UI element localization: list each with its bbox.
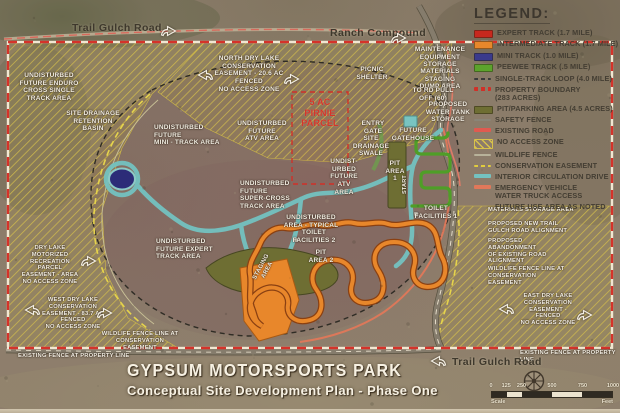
future-gatehouse — [404, 116, 417, 127]
east-easement-label: EAST DRY LAKE CONSERVATION EASEMENT - FE… — [516, 293, 580, 327]
legend-item: EXISTING ROAD — [474, 127, 620, 135]
north-easement-label: NORTH DRY LAKE CONSERVATION EASEMENT - 2… — [214, 55, 284, 93]
legend-item: SAFETY FENCE — [474, 116, 620, 124]
scale-bar-ticks: 01252505007501000 — [491, 383, 613, 390]
legend-item: INTERIOR CIRCULATION DRIVE — [474, 173, 620, 181]
legend-items: EXPERT TRACK (1.7 MILE)INTERMEDIATE TRAC… — [474, 29, 620, 211]
legend-swatch-dashed — [474, 87, 491, 91]
legend-swatch-solid — [474, 106, 493, 114]
legend-swatch-solid — [474, 41, 493, 49]
west-easement-label: WEST DRY LAKE CONSERVATION EASEMENT - 83… — [42, 297, 104, 331]
scale-segment — [492, 392, 507, 397]
drainage-swale-label: SITE DRAINAGE SWALE — [352, 135, 390, 158]
legend-item: NO ACCESS ZONE — [474, 138, 620, 149]
legend-label: WILDLIFE FENCE — [495, 151, 558, 159]
legend-item: MINI TRACK (1.0 MILE) — [474, 52, 620, 61]
legend-swatch-line-thin — [474, 154, 491, 156]
wildlife-fence-e-label: WILDLIFE FENCE LINE AT CONSERVATION EASE… — [488, 266, 570, 286]
existing-fence-sw-label: EXISTING FENCE AT PROPERTY LINE — [18, 353, 130, 360]
site-plan-page: Trail Gulch RoadRanch CompoundUNDISTURBE… — [0, 0, 620, 413]
legend-label: SAFETY FENCE — [495, 116, 552, 124]
retention-basin-label: SITE DRAINAGE RETENTION BASIN — [62, 110, 124, 133]
legend-item: PEEWEE TRACK (.5 MILE) — [474, 63, 620, 72]
legend-label: PEEWEE TRACK (.5 MILE) — [497, 63, 590, 71]
motorized-easement-arrow-icon — [80, 254, 97, 272]
legend-label: INTERMEDIATE TRACK (1.7 MILE) — [497, 40, 618, 48]
motorized-easement-label: DRY LAKE MOTORIZED RECREATION PARCEL EAS… — [18, 245, 82, 286]
legend-item: PROPERTY BOUNDARY (283 ACRES) — [474, 86, 620, 102]
mini-track-pond — [109, 169, 135, 190]
scale-segment — [507, 392, 522, 397]
east-easement-right-arrow-icon — [576, 308, 593, 326]
scale-tick: 750 — [578, 383, 587, 389]
legend-swatch-solid — [474, 64, 493, 72]
scale-tick: 500 — [547, 383, 556, 389]
wildlife-fence-sw-label: WILDLIFE FENCE LINE AT CONSERVATION EASE… — [100, 331, 180, 351]
atv-area-label: UNDISTURBED FUTURE ATV AREA — [236, 120, 288, 143]
north-easement-left-arrow-icon — [197, 68, 214, 86]
legend-item: CONSERVATION EASEMENT — [474, 162, 620, 170]
legend-label: PIT/PARKING AREA (4.5 ACRES) — [497, 105, 613, 113]
undisturbed-typical-label: UNDISTURBED AREA - TYPICAL — [282, 214, 340, 229]
legend-label: CONSERVATION EASEMENT — [495, 162, 597, 170]
expert-track-label: UNDISTURBED FUTURE EXPERT TRACK AREA — [156, 238, 216, 261]
scale-bar: 01252505007501000 Scale Feet — [491, 383, 613, 405]
feet-caption: Feet — [602, 399, 613, 405]
page-title: GYPSUM MOTORSPORTS PARK — [127, 362, 438, 381]
legend-swatch-line — [474, 185, 491, 189]
scale-segment — [522, 392, 552, 397]
maintenance-storage-label: MAINTENANCE EQUIPMENT STORAGE — [414, 46, 466, 69]
west-easement-right-arrow-icon — [96, 306, 113, 324]
legend-label: MINI TRACK (1.0 MILE) — [497, 52, 579, 60]
legend-swatch-line — [474, 128, 491, 132]
legend-label: FUTURE USE AREA AS NOTED — [495, 203, 606, 211]
legend-label: SINGLE-TRACK LOOP (4.0 MILE) — [495, 75, 612, 83]
legend-label: EXPERT TRACK (1.7 MILE) — [497, 29, 593, 37]
pit-area2-label: PIT AREA 2 — [306, 249, 336, 264]
scale-tick: 125 — [502, 383, 511, 389]
legend-item: WILDLIFE FENCE — [474, 151, 620, 159]
toilet1-label: TOILET FACILITIES 1 — [412, 205, 460, 220]
enduro-area-label: UNDISTURBED FUTURE ENDURO CROSS SINGLE T… — [10, 72, 88, 103]
picnic-shelter-label: PICNIC SHELTER — [352, 66, 392, 81]
legend-panel: LEGEND: EXPERT TRACK (1.7 MILE)INTERMEDI… — [474, 5, 620, 211]
photo-edge — [0, 409, 620, 413]
legend-item: EXPERT TRACK (1.7 MILE) — [474, 29, 620, 38]
west-easement-left-arrow-icon — [24, 303, 41, 321]
mini-track-area-label: UNDISTURBED FUTURE MINI - TRACK AREA — [154, 124, 226, 147]
future-gatehouse-label: FUTURE GATEHOUSE — [390, 127, 436, 142]
legend-swatch-dashed-thin — [474, 165, 491, 167]
supercross-label: UNDISTURBED FUTURE SUPER-CROSS TRACK ARE… — [240, 180, 292, 211]
scale-tick: 1000 — [607, 383, 619, 389]
legend-swatch-line-thin — [474, 119, 491, 121]
legend-item: SINGLE-TRACK LOOP (4.0 MILE) — [474, 75, 620, 83]
scale-caption: Scale — [491, 399, 505, 405]
toilet2-label: TOILET FACILITIES 2 — [290, 229, 338, 244]
legend-item: PIT/PARKING AREA (4.5 ACRES) — [474, 105, 620, 114]
trail-gulch-top-arrow-icon — [160, 24, 177, 42]
pirnie-parcel-label: 5 AC PIRNIE PARCEL — [296, 97, 344, 129]
legend-item: INTERMEDIATE TRACK (1.7 MILE) — [474, 40, 620, 49]
scale-tick: 0 — [489, 383, 492, 389]
scale-segment — [552, 392, 582, 397]
north-easement-right-arrow-icon — [283, 72, 300, 90]
atv-area-label-2: UNDIST- URBED FUTURE ATV AREA — [327, 158, 361, 196]
legend-title: LEGEND: — [474, 6, 550, 24]
legend-label: NO ACCESS ZONE — [497, 138, 564, 146]
trail-gulch-road-top-label: Trail Gulch Road — [72, 22, 162, 34]
entry-gate-label: ENTRY GATE — [358, 120, 388, 135]
legend-swatch-solid — [474, 30, 493, 38]
scale-tick: 250 — [517, 383, 526, 389]
ranch-compound-arrow-icon — [390, 31, 407, 49]
new-alignment-label: PROPOSED NEW TRAIL GULCH ROAD ALIGNMENT — [488, 221, 570, 235]
ranch-compound-label: Ranch Compound — [330, 27, 426, 39]
scale-bar-segments — [491, 391, 613, 398]
page-subtitle: Conceptual Site Development Plan - Phase… — [127, 383, 438, 398]
water-tank-label: PROPOSED WATER TANK STORAGE — [422, 101, 474, 124]
legend-swatch-solid — [474, 53, 493, 61]
scale-segment — [582, 392, 612, 397]
start-label: START — [402, 175, 408, 194]
legend-swatch-dashed-thin — [474, 78, 491, 80]
east-easement-left-arrow-icon — [498, 302, 515, 320]
legend-label: PROPERTY BOUNDARY (283 ACRES) — [495, 86, 581, 102]
legend-label: INTERIOR CIRCULATION DRIVE — [495, 173, 609, 181]
legend-swatch-line — [474, 174, 491, 178]
legend-item: FUTURE USE AREA AS NOTED — [474, 203, 620, 211]
trail-gulch-road-bottom-label: Trail Gulch Road — [452, 356, 542, 368]
legend-swatch-hatch — [474, 139, 493, 149]
abandonment-label: PROPOSED ABANDONMENT OF EXISTING ROAD AL… — [488, 238, 558, 265]
legend-item: EMERGENCY VEHICLE WATER TRUCK ACCESS — [474, 184, 620, 200]
legend-label: EMERGENCY VEHICLE WATER TRUCK ACCESS — [495, 184, 582, 200]
title-block: GYPSUM MOTORSPORTS PARK Conceptual Site … — [127, 362, 438, 398]
legend-label: EXISTING ROAD — [495, 127, 554, 135]
